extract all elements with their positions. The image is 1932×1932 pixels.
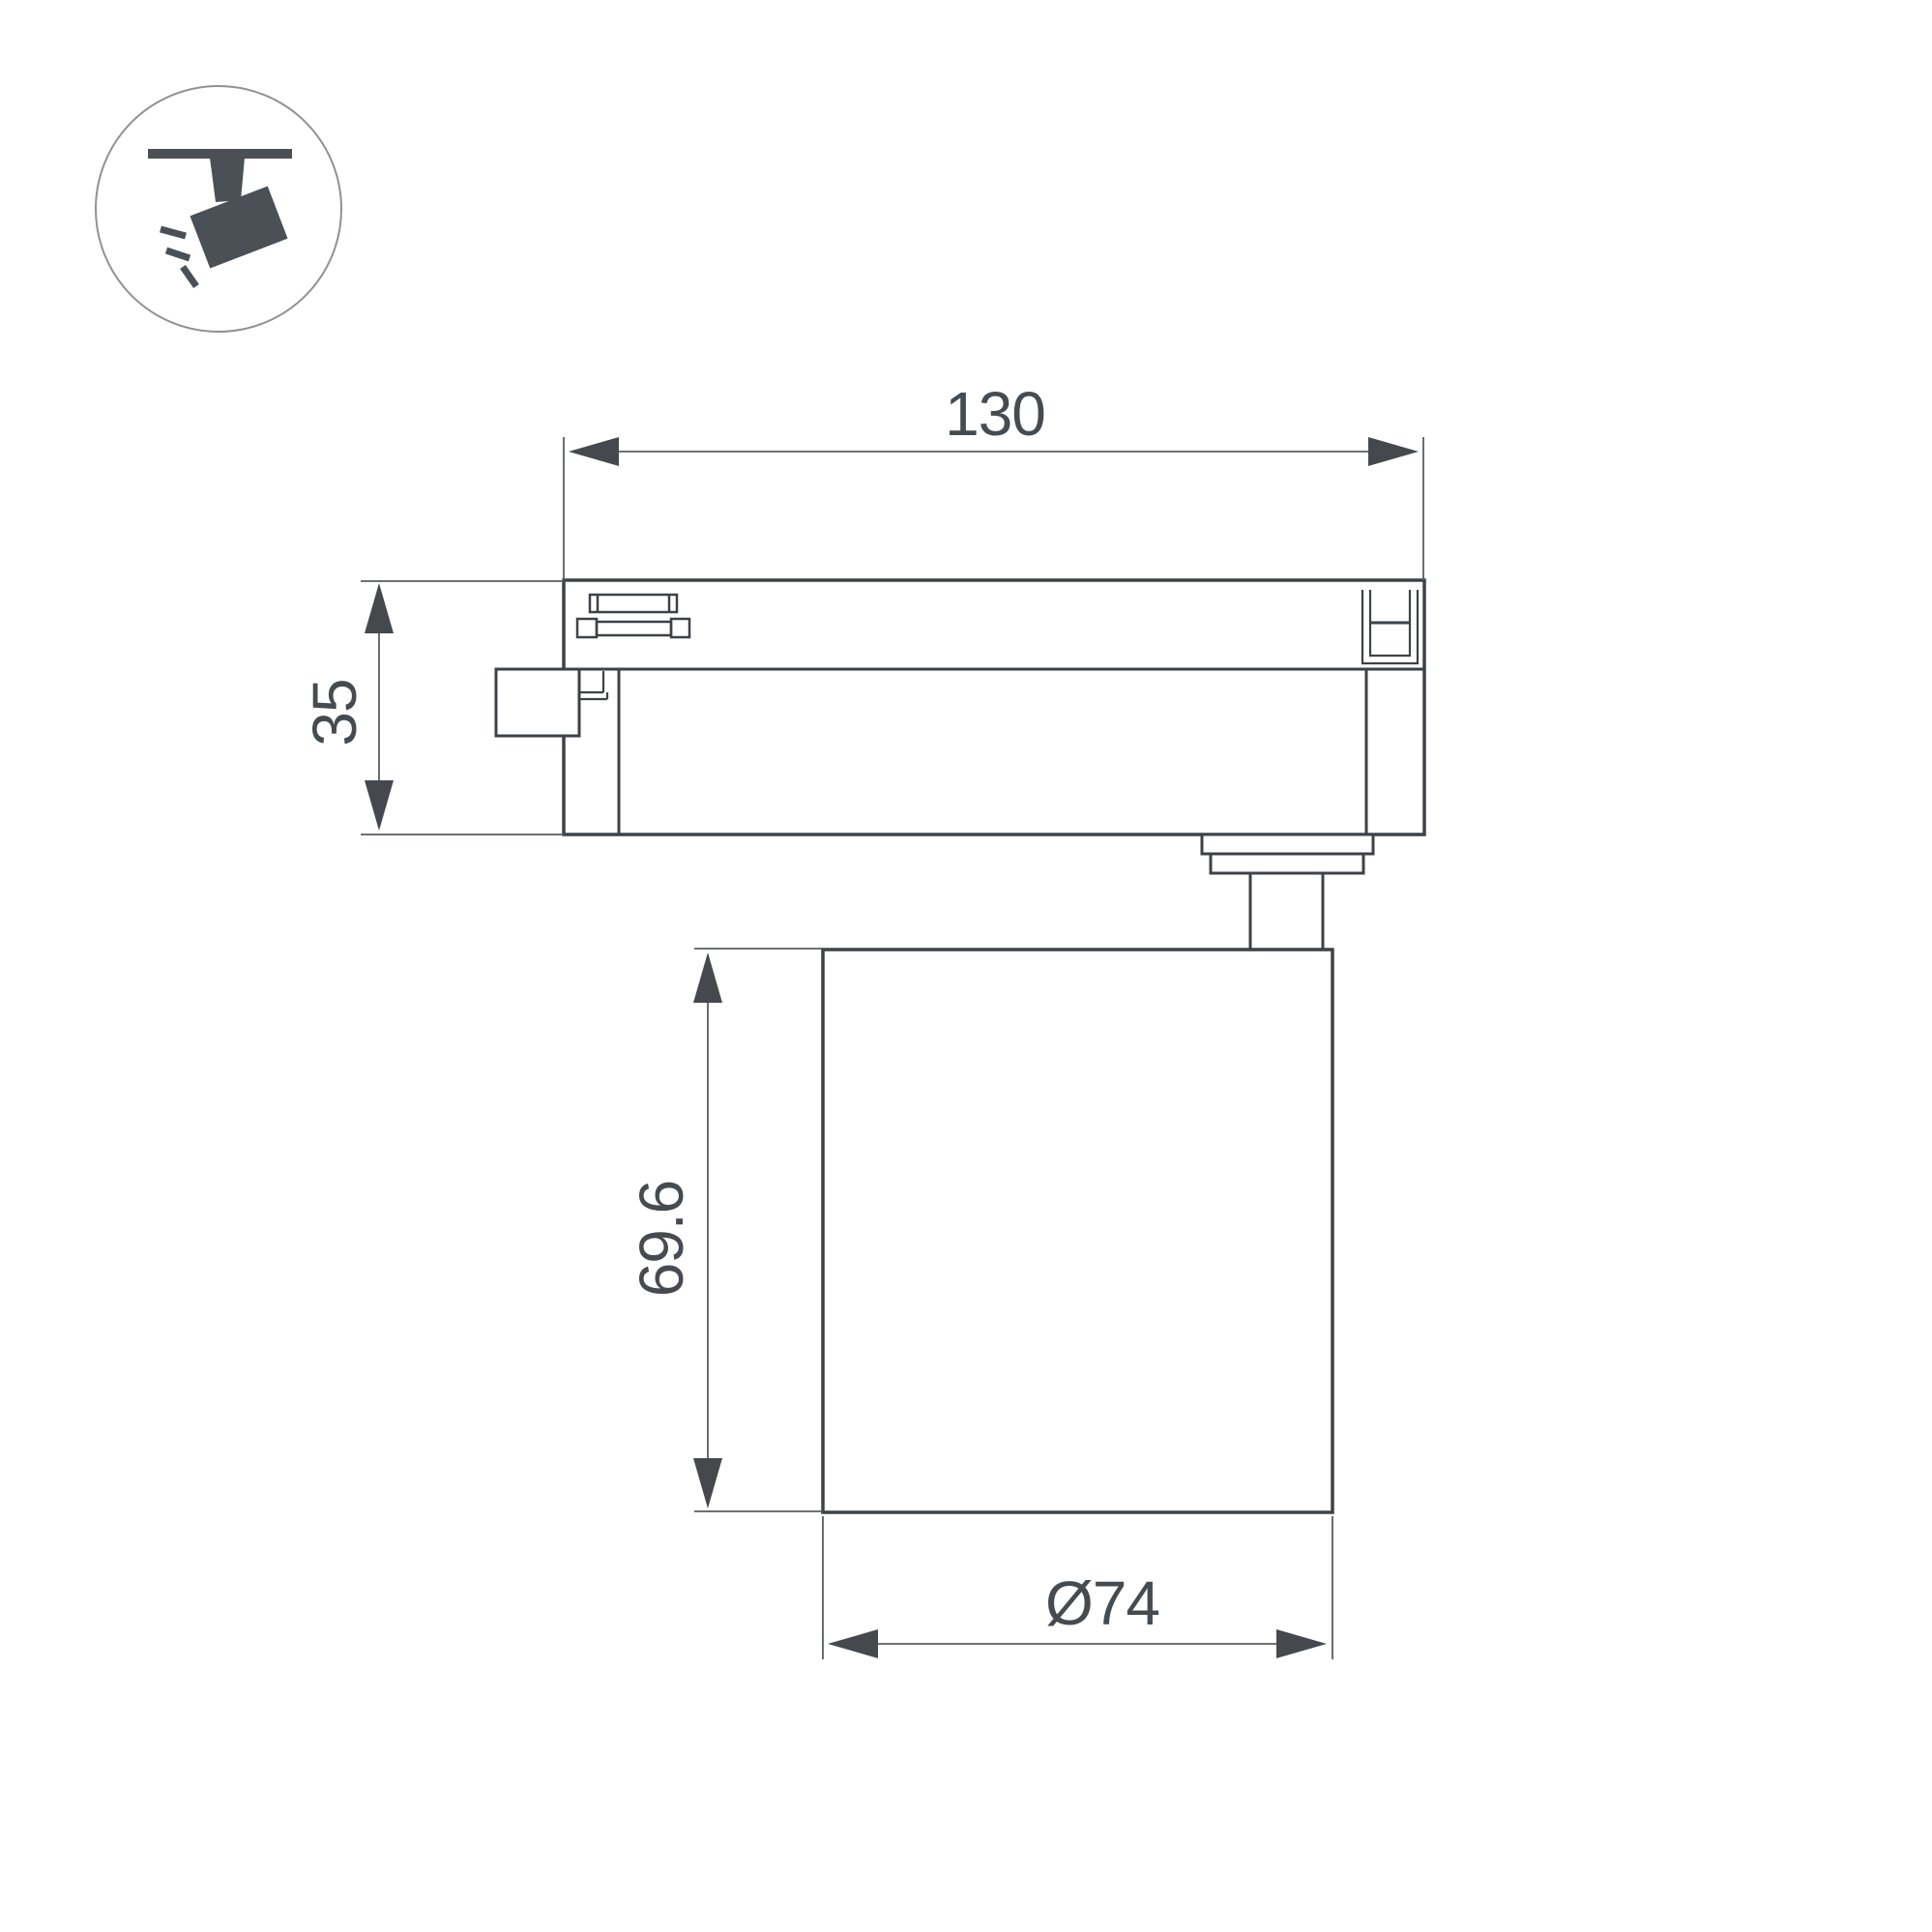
icon-stem — [210, 158, 245, 202]
dimension-lamp-diameter: Ø74 — [823, 1516, 1332, 1659]
arrowhead-up — [365, 583, 394, 633]
track-adapter — [496, 580, 1424, 834]
stem-flange-lower — [1211, 854, 1363, 873]
lamp-head — [823, 950, 1332, 1512]
dimension-label-lamp-height: 69.6 — [627, 1181, 696, 1298]
stem-flange-upper — [1202, 834, 1373, 854]
arrowhead-up — [693, 952, 722, 1003]
dimension-label-track-width: 130 — [945, 379, 1045, 449]
arrowhead-right — [1276, 1629, 1327, 1658]
arrowhead-down — [693, 1458, 722, 1508]
dimension-lamp-height: 69.6 — [627, 949, 823, 1511]
dimension-label-lamp-diameter: Ø74 — [1045, 1568, 1159, 1638]
stem-column — [1250, 873, 1323, 950]
technical-drawing-canvas: 130 35 69.6 Ø74 — [0, 0, 1932, 1932]
dimension-track-width: 130 — [564, 379, 1423, 580]
icon-track-bar — [148, 149, 292, 159]
adapter-outline — [564, 580, 1424, 834]
stem-joint — [1202, 834, 1373, 950]
arrowhead-down — [365, 780, 394, 831]
arrowhead-left — [828, 1629, 878, 1658]
arrowhead-right — [1368, 437, 1419, 466]
arrowhead-left — [569, 437, 619, 466]
dimension-label-adapter-height: 35 — [300, 679, 369, 746]
latch-block — [496, 669, 579, 736]
track-spotlight-icon — [96, 86, 341, 332]
